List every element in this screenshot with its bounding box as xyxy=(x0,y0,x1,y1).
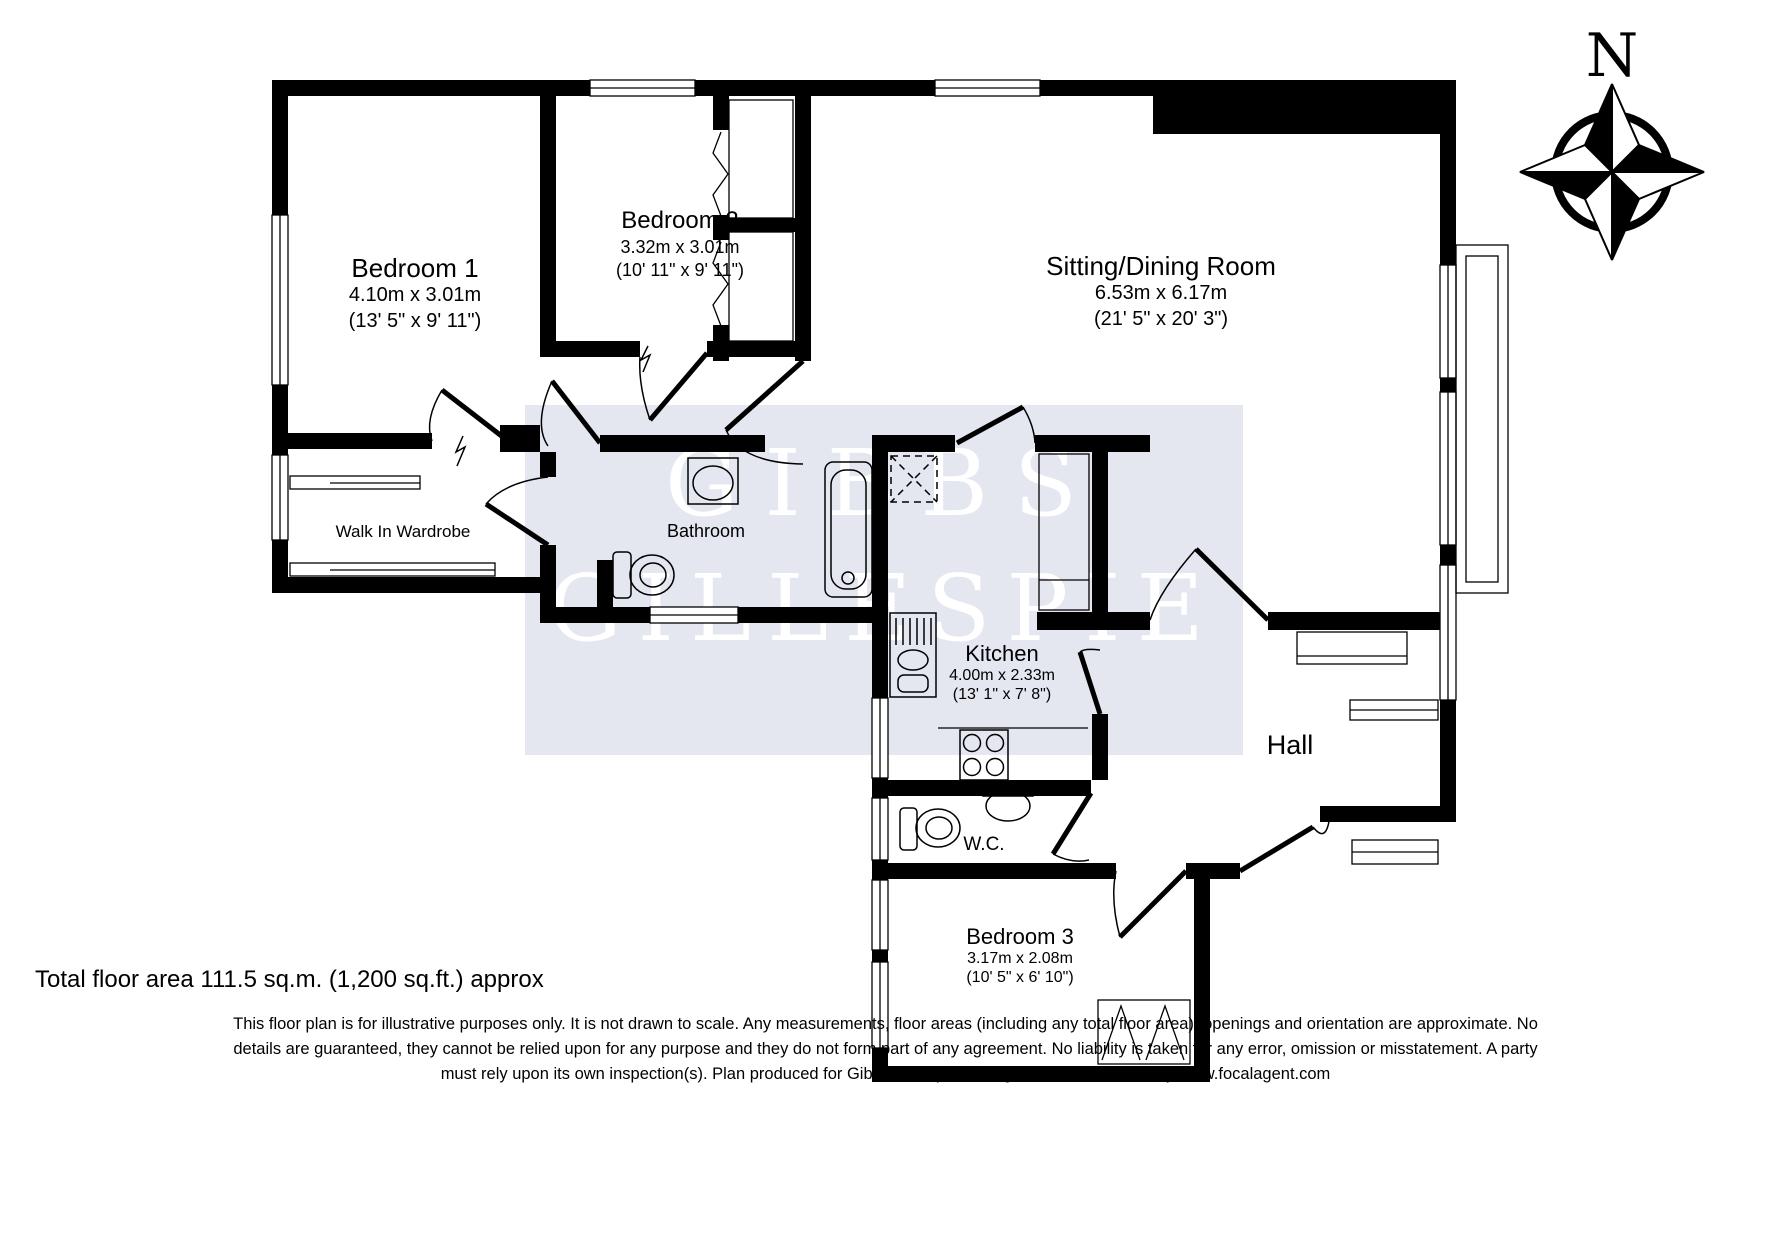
wardrobe-shelf xyxy=(290,476,420,489)
room-label-hall: Hall xyxy=(1267,730,1314,761)
room-dims-imperial: (21' 5" x 20' 3") xyxy=(1046,306,1276,332)
room-dims-metric: 6.53m x 6.17m xyxy=(1046,280,1276,306)
floor-plan-page: GIBBS GILLESPIE xyxy=(0,0,1771,1240)
compass-north-label: N xyxy=(1586,21,1639,91)
room-label-sitting-dining: Sitting/Dining Room 6.53m x 6.17m (21' 5… xyxy=(1046,252,1276,332)
door-icon xyxy=(1053,793,1091,861)
window-icon xyxy=(872,880,888,950)
room-label-bedroom1: Bedroom 1 4.10m x 3.01m (13' 5" x 9' 11"… xyxy=(349,254,482,334)
hall-radiator xyxy=(1350,700,1438,720)
room-label-walk-in-wardrobe: Walk In Wardrobe xyxy=(336,522,471,542)
disclaimer-line: This floor plan is for illustrative purp… xyxy=(0,1012,1771,1037)
room-name: Hall xyxy=(1267,730,1314,760)
window-icon xyxy=(1440,565,1456,700)
room-name: Walk In Wardrobe xyxy=(336,522,471,541)
window-icon xyxy=(650,607,738,623)
toilet-icon xyxy=(900,808,960,850)
room-dims-imperial: (13' 1" x 7' 8") xyxy=(949,685,1055,704)
room-name: Bathroom xyxy=(667,521,745,541)
room-label-bathroom: Bathroom xyxy=(667,521,745,542)
window-icon xyxy=(872,698,888,778)
room-label-bedroom2: Bedroom 2 3.32m x 3.01m (10' 11" x 9' 11… xyxy=(616,207,744,281)
room-name: Bedroom 2 xyxy=(616,207,744,235)
door-icon xyxy=(1114,871,1186,937)
wardrobe-shelf xyxy=(290,563,495,576)
window-icon xyxy=(872,798,888,860)
window-icon xyxy=(935,80,1040,96)
window-icon xyxy=(1440,392,1456,545)
door-icon xyxy=(1240,814,1330,871)
opening-mark xyxy=(641,346,650,372)
room-name: Bedroom 1 xyxy=(349,254,482,282)
opening-mark xyxy=(456,436,465,466)
disclaimer: This floor plan is for illustrative purp… xyxy=(0,1012,1771,1087)
room-dims-metric: 4.00m x 2.33m xyxy=(949,666,1055,685)
room-name: W.C. xyxy=(963,834,1004,855)
room-dims-metric: 3.32m x 3.01m xyxy=(616,235,744,259)
disclaimer-line: must rely upon its own inspection(s). Pl… xyxy=(0,1062,1771,1087)
hall-cupboard xyxy=(1297,632,1407,664)
compass-icon: N xyxy=(1520,21,1704,260)
window-icon xyxy=(272,455,288,540)
room-name: Sitting/Dining Room xyxy=(1046,252,1276,280)
window-icon xyxy=(590,80,695,96)
room-name: Bedroom 3 xyxy=(966,925,1074,949)
room-dims-metric: 4.10m x 3.01m xyxy=(349,282,482,308)
door-icon xyxy=(430,390,508,441)
room-dims-imperial: (13' 5" x 9' 11") xyxy=(349,308,482,334)
total-floor-area: Total floor area 111.5 sq.m. (1,200 sq.f… xyxy=(35,966,544,994)
room-dims-metric: 3.17m x 2.08m xyxy=(966,949,1074,968)
room-dims-imperial: (10' 5" x 6' 10") xyxy=(966,968,1074,987)
room-label-bedroom3: Bedroom 3 3.17m x 2.08m (10' 5" x 6' 10"… xyxy=(966,925,1074,987)
room-dims-imperial: (10' 11" x 9' 11") xyxy=(616,259,744,281)
room-label-wc: W.C. xyxy=(963,834,1004,856)
bay-window-frame xyxy=(1456,245,1508,593)
window-icon xyxy=(1440,265,1456,378)
bifold-door-icon xyxy=(713,132,728,216)
closet xyxy=(729,100,793,218)
disclaimer-line: details are guaranteed, they cannot be r… xyxy=(0,1037,1771,1062)
window-icon xyxy=(272,215,288,385)
hall-radiator xyxy=(1352,840,1438,864)
room-label-kitchen: Kitchen 4.00m x 2.33m (13' 1" x 7' 8") xyxy=(949,642,1055,704)
room-name: Kitchen xyxy=(949,642,1055,666)
